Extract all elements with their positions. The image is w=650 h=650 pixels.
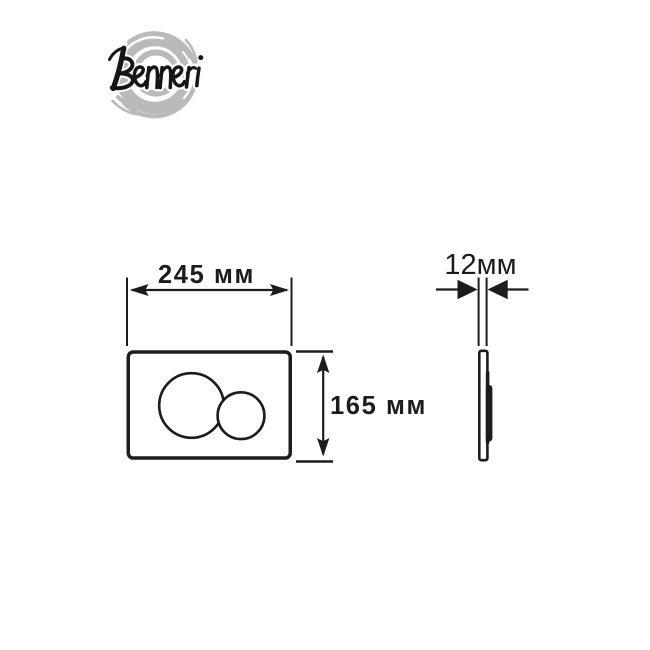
svg-text:12мм: 12мм <box>444 249 516 281</box>
svg-text:245 мм: 245 мм <box>158 261 255 289</box>
svg-text:165 мм: 165 мм <box>330 392 427 420</box>
